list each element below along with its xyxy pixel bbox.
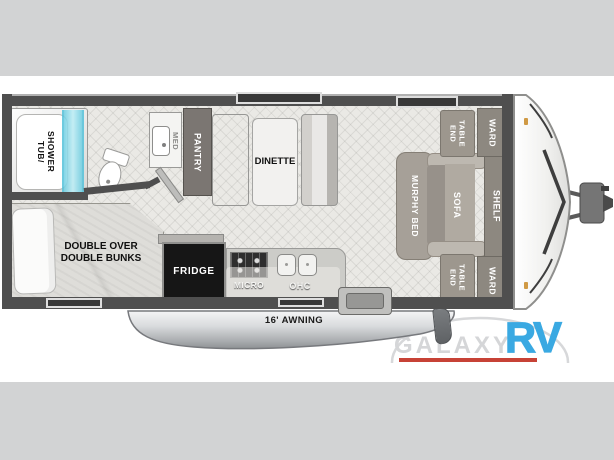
kitchen-sink-right <box>298 254 317 276</box>
shower-glass <box>62 110 84 194</box>
micro-label: MICRO <box>226 280 272 290</box>
awning-label: 16' AWNING <box>234 315 354 326</box>
end-table-bottom: ENDTABLE <box>440 254 475 301</box>
kitchen-sink-left <box>277 254 296 276</box>
sofa-label: SOFA <box>443 172 471 238</box>
window-dinette <box>236 92 322 104</box>
window-murphy-bed <box>396 96 458 108</box>
floorplan-screenshot: GALAXY RV 16' AWNING DOUBLE OVER DOUBLE … <box>0 0 614 460</box>
bathroom-wall <box>2 192 88 200</box>
dinette-label: DINETTE <box>236 156 314 167</box>
end-table-top: ENDTABLE <box>440 110 475 157</box>
wall-rear <box>2 94 12 309</box>
pantry-cabinet: PANTRY <box>183 108 212 196</box>
med-label: MED <box>171 119 180 163</box>
tub-shower-label: TUB/ SHOWER <box>30 116 62 188</box>
hitch-coupler <box>603 194 613 212</box>
awning-shape <box>124 306 460 354</box>
bunk-label: DOUBLE OVER DOUBLE BUNKS <box>42 241 160 264</box>
marker-light-bottom <box>524 282 528 289</box>
front-cap-and-hitch <box>500 88 614 323</box>
medicine-cabinet: MED <box>149 112 182 168</box>
tongue-jack <box>601 186 609 191</box>
entry-step-inner <box>346 293 384 309</box>
entry-door-step <box>338 287 392 315</box>
ohc-label: OHC <box>282 281 318 291</box>
propane-cover <box>580 183 604 223</box>
pantry-label: PANTRY <box>193 133 203 172</box>
drain-icon <box>285 263 288 266</box>
faucet-icon <box>162 143 166 147</box>
refrigerator: FRIDGE <box>162 242 226 301</box>
marker-light-top <box>524 118 528 125</box>
drain-icon <box>306 263 309 266</box>
fridge-label: FRIDGE <box>173 266 214 277</box>
murphy-bed-label: MURPHY BED <box>410 175 420 237</box>
bathroom-sink <box>152 126 170 156</box>
window-kitchen <box>278 298 324 307</box>
window-bunk <box>46 298 102 308</box>
logo-underline <box>399 358 537 362</box>
